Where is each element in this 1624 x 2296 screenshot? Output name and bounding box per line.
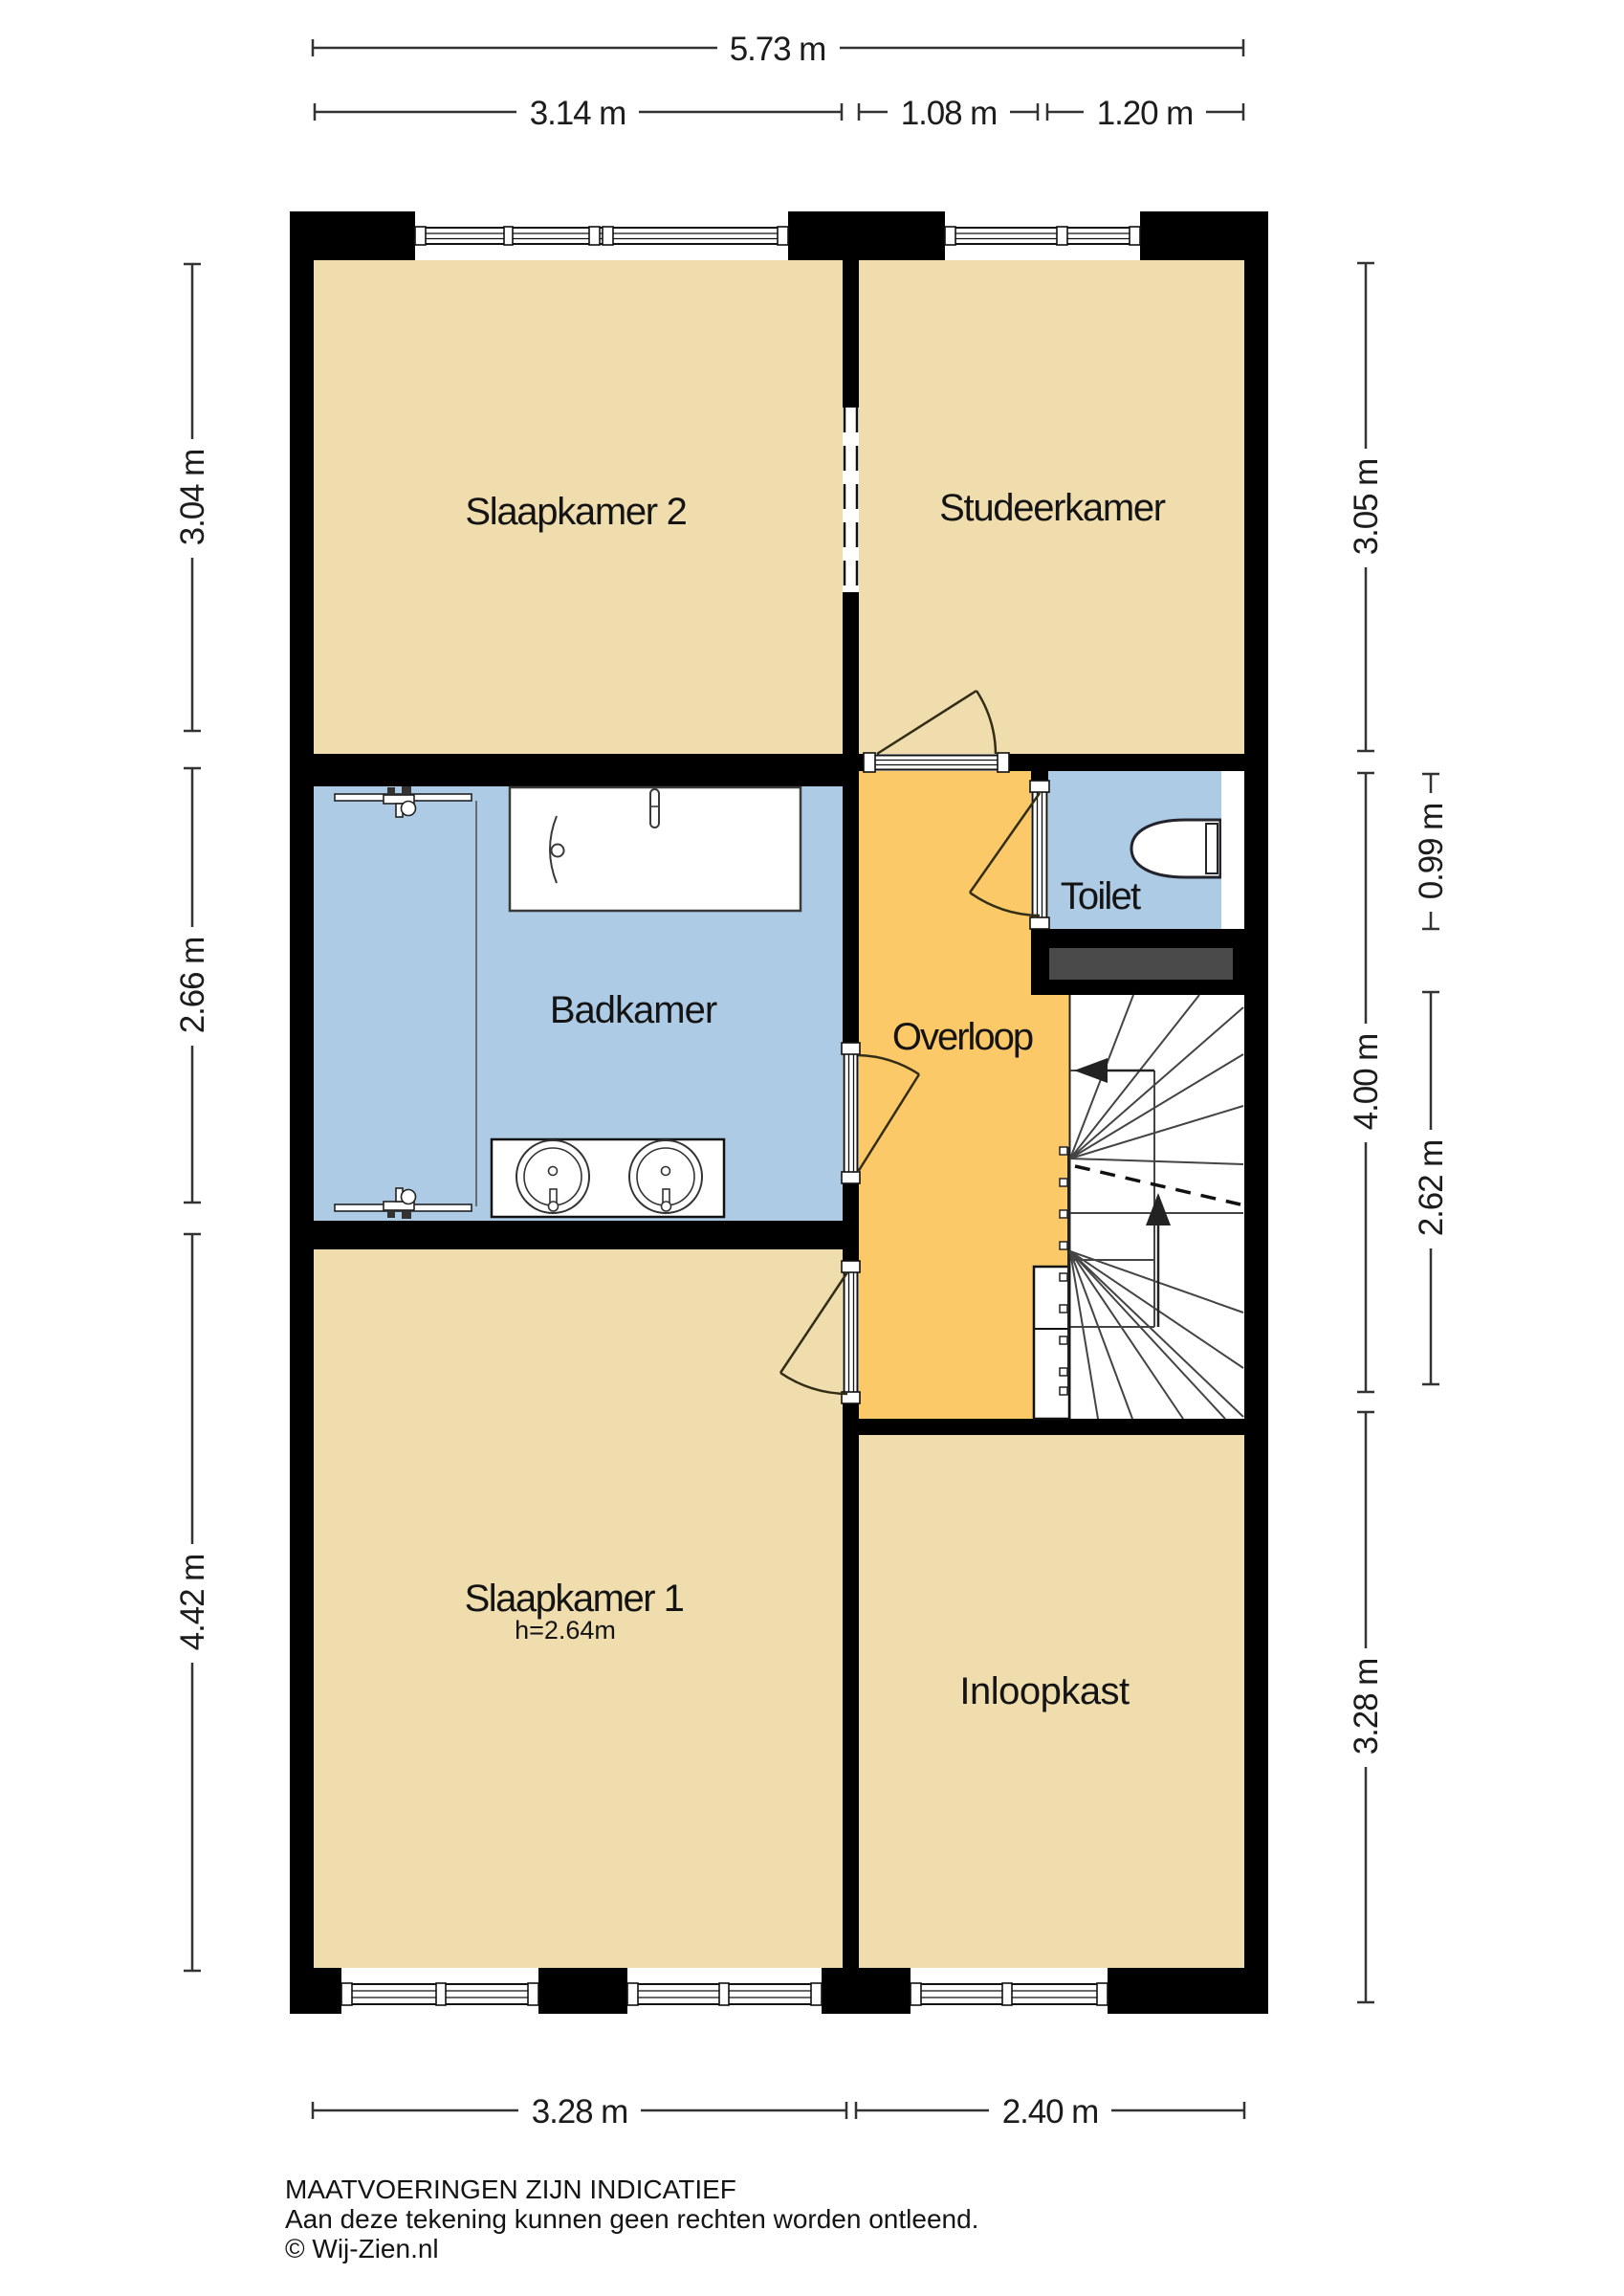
svg-text:Badkamer: Badkamer [550,989,717,1031]
svg-text:5.73 m: 5.73 m [730,31,825,68]
svg-text:1.20 m: 1.20 m [1097,95,1193,132]
svg-text:h=2.64m: h=2.64m [515,1616,616,1645]
svg-text:4.00 m: 4.00 m [1348,1034,1385,1130]
svg-text:Toilet: Toilet [1061,875,1141,917]
svg-text:4.42 m: 4.42 m [174,1555,211,1650]
svg-text:2.62 m: 2.62 m [1413,1140,1450,1236]
svg-text:3.14 m: 3.14 m [530,95,625,132]
svg-text:Slaapkamer 2: Slaapkamer 2 [465,491,686,533]
svg-text:0.99 m: 0.99 m [1413,804,1450,899]
svg-text:1.08 m: 1.08 m [901,95,997,132]
svg-text:Inloopkast: Inloopkast [959,1670,1130,1712]
svg-text:Studeerkamer: Studeerkamer [939,487,1166,529]
svg-text:3.04 m: 3.04 m [174,450,211,545]
svg-text:2.40 m: 2.40 m [1002,2093,1098,2130]
svg-text:MAATVOERINGEN ZIJN INDICATIEF: MAATVOERINGEN ZIJN INDICATIEF [285,2175,736,2204]
svg-text:3.05 m: 3.05 m [1348,459,1385,555]
svg-text:3.28 m: 3.28 m [1348,1659,1385,1755]
svg-text:© Wij-Zien.nl: © Wij-Zien.nl [285,2234,439,2263]
svg-text:Aan deze tekening kunnen geen: Aan deze tekening kunnen geen rechten wo… [285,2204,978,2234]
svg-text:Overloop: Overloop [892,1016,1033,1058]
svg-text:3.28 m: 3.28 m [532,2093,627,2130]
svg-text:Slaapkamer 1: Slaapkamer 1 [465,1578,684,1620]
svg-text:2.66 m: 2.66 m [174,938,211,1033]
